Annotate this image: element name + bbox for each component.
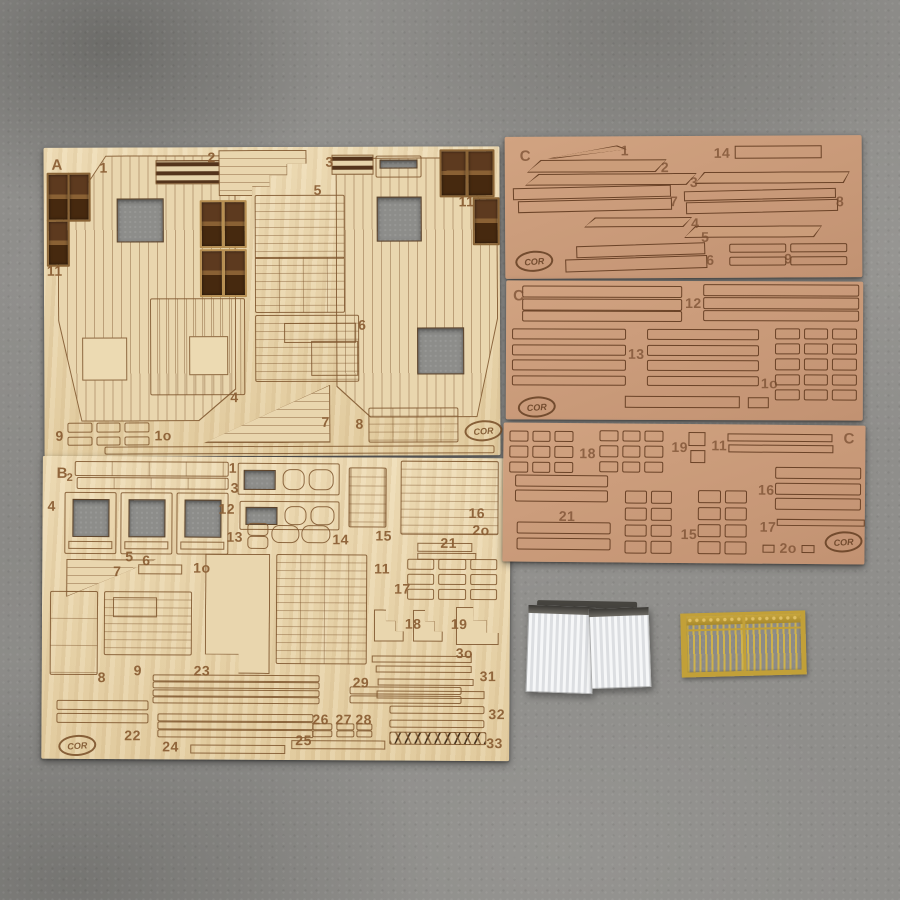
small-part — [688, 432, 705, 446]
part-number: 1o — [193, 561, 210, 575]
window-frame-part — [200, 249, 224, 297]
part-roof-wedge — [695, 171, 850, 184]
part-strip — [376, 666, 472, 674]
small-parts-grid — [509, 430, 573, 473]
strip-group — [522, 285, 682, 322]
part-number: 5 — [314, 183, 322, 197]
small-parts-grid — [624, 490, 672, 553]
maker-logo: COR — [517, 395, 556, 418]
strip-group — [775, 467, 861, 511]
window-cutout — [417, 327, 464, 374]
part-number: 13 — [628, 347, 645, 361]
part-number: 9 — [134, 663, 142, 677]
strip-group — [512, 328, 626, 385]
part-number: 12 — [685, 296, 702, 310]
part-number: 15 — [681, 527, 698, 541]
mdf-sheet-c3: C 18 19 11 16 21 15 17 2o COR — [502, 422, 865, 564]
window-cutout — [82, 338, 127, 381]
mdf-sheet-c2: C 12 13 1o COR — [506, 280, 863, 420]
part-number: 18 — [579, 446, 596, 460]
part-roof-wedge — [584, 217, 692, 228]
part-strip — [190, 745, 285, 754]
part-number: 1o — [761, 376, 778, 390]
window-cutout — [377, 196, 422, 241]
window-frame-part — [223, 200, 247, 248]
part-chimney — [50, 591, 98, 675]
part-plank-panel — [276, 554, 368, 664]
part-roof-strip — [518, 198, 672, 213]
scene: A 1 2 3 5 11 11 6 4 7 8 9 1o COR — [0, 0, 900, 900]
part-roof-wedge — [525, 173, 697, 186]
window-frame-part — [68, 173, 91, 222]
part-floor-ring — [150, 298, 245, 395]
corrugated-paper-sheet — [589, 607, 652, 689]
part-stair-panel — [255, 257, 345, 313]
part-number: 7 — [113, 564, 121, 578]
strip-group — [703, 284, 859, 322]
small-part — [247, 536, 268, 549]
slot-part — [375, 155, 421, 177]
part-number: 6 — [358, 318, 366, 332]
part-number: 16 — [758, 483, 775, 497]
part-strip — [727, 433, 832, 442]
part-number: 11 — [47, 264, 63, 278]
part-stepped-trim — [218, 150, 306, 196]
louver-vent-part — [331, 155, 373, 175]
part-truss-strip — [389, 732, 486, 746]
part-number: 2 — [67, 473, 74, 484]
part-window-wall — [120, 492, 172, 554]
window-frame-part — [47, 220, 70, 267]
maker-logo: COR — [464, 419, 503, 443]
part-roof-wedge — [527, 159, 667, 173]
part-number: 13 — [226, 530, 243, 544]
maker-logo: COR — [824, 530, 863, 553]
small-part — [801, 545, 814, 553]
part-dormer-panel — [104, 591, 192, 655]
part-number: 27 — [335, 712, 352, 726]
part-roof-strip — [735, 145, 822, 158]
part-number: 6 — [142, 553, 150, 567]
window-frame-part — [466, 149, 494, 197]
small-part — [690, 450, 705, 463]
part-number: 11 — [374, 562, 390, 576]
part-number: 5 — [701, 230, 709, 244]
part-number: 1 — [621, 143, 629, 157]
part-number: 4 — [230, 390, 238, 404]
part-number: 2o — [472, 523, 489, 537]
strip-group — [157, 713, 313, 737]
strip-group — [56, 700, 148, 723]
part-number: 7 — [670, 194, 678, 208]
maker-logo: COR — [515, 249, 554, 273]
window-cutout — [117, 198, 164, 242]
window-frame-part — [223, 249, 247, 297]
part-long-strip — [105, 445, 495, 454]
part-number: 15 — [375, 529, 392, 543]
part-number: 14 — [332, 532, 349, 546]
part-roof-wedge — [547, 145, 627, 158]
part-number: 17 — [760, 520, 777, 534]
part-number: 3 — [690, 175, 698, 189]
part-ladder — [348, 467, 386, 527]
part-number: 8 — [98, 670, 106, 684]
window-frame-part — [47, 173, 70, 222]
part-stair-profile — [374, 610, 404, 642]
part-number: 4 — [47, 499, 55, 513]
part-number: 3o — [456, 646, 473, 660]
sheet-label: C — [843, 431, 854, 446]
part-number: 14 — [714, 146, 731, 160]
part-number: 19 — [451, 617, 468, 631]
small-parts-grid — [697, 490, 747, 554]
part-number: 11 — [711, 438, 727, 452]
small-parts-grid — [67, 422, 149, 445]
part-clapboard-strip — [77, 477, 229, 490]
part-number: 21 — [440, 536, 457, 550]
strip-group — [153, 674, 320, 704]
part-number: 28 — [355, 712, 372, 726]
window-frame-part — [200, 200, 224, 248]
part-number: 1o — [154, 428, 171, 442]
part-number: 3 — [231, 481, 239, 495]
part-strip — [625, 396, 740, 408]
part-number: 25 — [295, 733, 312, 747]
part-clapboard-strip — [75, 461, 229, 477]
part-roof-strip — [686, 199, 838, 214]
brass-etched-railing-fret — [680, 610, 807, 677]
part-number: 1 — [229, 461, 237, 475]
part-brick-block — [368, 407, 458, 442]
part-stair-panel — [255, 195, 345, 259]
part-number: 32 — [488, 707, 505, 721]
part-number: 24 — [162, 739, 179, 753]
maker-logo: COR — [58, 734, 97, 757]
window-frame-part — [473, 197, 500, 245]
sheet-label: C — [513, 288, 524, 303]
part-number: 12 — [218, 502, 235, 516]
part-number: 11 — [459, 194, 475, 208]
part-number: 2 — [207, 150, 215, 164]
part-number: 2 — [661, 160, 669, 174]
corrugated-paper-sheet — [526, 605, 596, 694]
small-part — [271, 525, 299, 543]
strip-group — [647, 329, 759, 386]
small-part — [762, 545, 774, 553]
part-number: 26 — [312, 712, 329, 726]
part-number: 8 — [355, 417, 363, 431]
part-number: 4 — [691, 216, 699, 230]
strip-group — [515, 475, 608, 503]
part-number: 2o — [779, 541, 796, 555]
part-number: 1 — [100, 161, 108, 175]
part-number: 7 — [321, 415, 329, 429]
sheet-label: C — [520, 149, 531, 164]
part-number: 21 — [559, 509, 576, 523]
part-number: 9 — [55, 429, 63, 443]
part-plank-panel — [205, 554, 271, 674]
strip-group — [517, 522, 611, 551]
small-part — [301, 525, 330, 543]
part-door-strip — [238, 463, 340, 496]
plywood-sheet-a: A 1 2 3 5 11 11 6 4 7 8 9 1o COR — [43, 146, 500, 457]
part-number: 31 — [480, 669, 497, 683]
mdf-sheet-c1: C 1 14 2 3 7 8 4 5 6 9 COR — [505, 135, 863, 279]
part-number: 16 — [468, 506, 485, 520]
part-strip — [728, 444, 833, 453]
part-number: 19 — [671, 440, 688, 454]
part-window-wall — [64, 492, 116, 554]
plywood-sheet-b: B 2 1 3 4 5 12 13 14 15 16 2o 21 17 18 1… — [41, 456, 511, 761]
part-number: 33 — [486, 736, 503, 750]
small-parts-grid — [407, 559, 497, 600]
part-number: 22 — [124, 728, 141, 742]
sheet-label: A — [51, 158, 62, 173]
part-strip — [777, 519, 865, 527]
part-strip — [378, 679, 474, 687]
part-number: 3 — [325, 155, 333, 169]
part-number: 6 — [706, 253, 714, 267]
part-number: 9 — [784, 251, 792, 265]
part-number: 17 — [394, 582, 411, 596]
small-parts-grid — [599, 430, 663, 473]
small-parts-grid — [775, 328, 857, 400]
part-number: 5 — [125, 549, 133, 563]
strip-group — [389, 706, 484, 728]
part-deck-panel — [255, 315, 359, 382]
small-part — [748, 397, 769, 408]
part-number: 8 — [836, 194, 844, 208]
window-frame-part — [439, 149, 467, 197]
small-part — [247, 523, 268, 536]
part-number: 23 — [194, 664, 211, 678]
part-number: 18 — [405, 617, 422, 631]
part-number: 29 — [353, 675, 370, 689]
